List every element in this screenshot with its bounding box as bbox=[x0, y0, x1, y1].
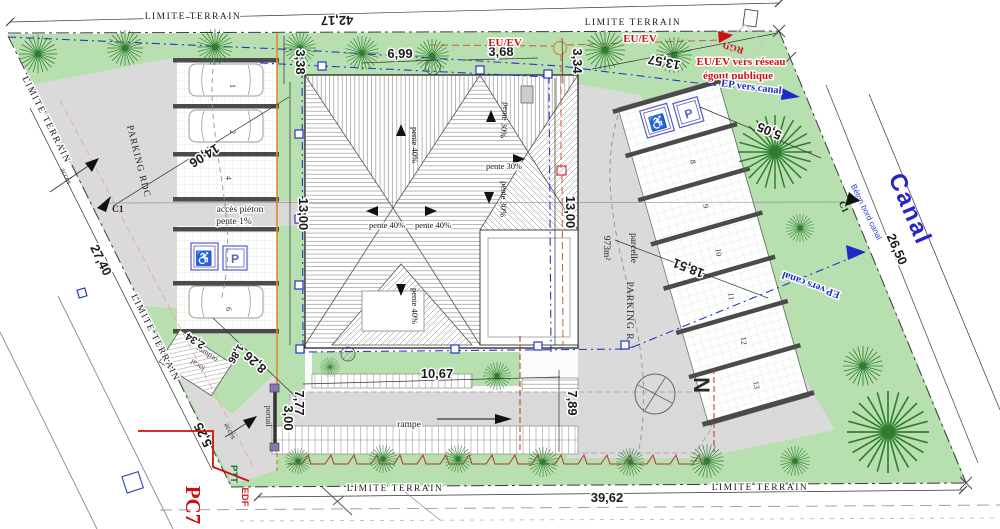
tree-icon bbox=[415, 39, 449, 73]
dim-3-00: 3,00 bbox=[281, 405, 296, 430]
limite-top: LIMITE TERRAIN bbox=[145, 12, 242, 22]
dim-7-89: 7,89 bbox=[565, 390, 580, 415]
dim-6-99: 6,99 bbox=[387, 46, 412, 61]
dim-10-67: 10,67 bbox=[421, 366, 454, 381]
parking-r1-label: PARKING R-1 bbox=[624, 282, 634, 351]
tree-icon bbox=[847, 391, 929, 473]
euev-label: EU/EV bbox=[623, 33, 657, 45]
parking-p-icon: P bbox=[231, 252, 239, 266]
tree-icon bbox=[345, 36, 379, 70]
pc7-label: PC7 bbox=[181, 486, 205, 525]
dim-3-34: 3,34 bbox=[570, 48, 585, 74]
dim-bottom: 39,62 bbox=[591, 490, 624, 505]
wheelchair-icon: ♿ bbox=[195, 250, 212, 267]
chimney bbox=[521, 86, 533, 103]
dim-3-38: 3,38 bbox=[293, 49, 308, 74]
dim-13-00: 13,00 bbox=[563, 196, 578, 229]
space-number: 10 bbox=[714, 248, 724, 257]
ptt-label: PTT bbox=[228, 465, 239, 483]
site-plan-drawing: 1 2 4 6 ♿ P accès piéton pente 1% PARKIN… bbox=[0, 0, 1000, 529]
tree-icon bbox=[285, 448, 311, 474]
tree-icon bbox=[197, 29, 233, 65]
pente40-label: pente 40% bbox=[410, 288, 420, 324]
tree-icon bbox=[19, 35, 57, 73]
parcelle-area-label: 973m² bbox=[601, 236, 611, 261]
courtyard bbox=[480, 230, 578, 345]
manhole-hatched-icon bbox=[341, 347, 355, 361]
portail-label: portail bbox=[264, 406, 273, 428]
site-plan-page: 1 2 4 6 ♿ P accès piéton pente 1% PARKIN… bbox=[0, 0, 1000, 529]
tree-icon bbox=[786, 214, 814, 242]
limite-bottom-right: LIMITE TERRAIN bbox=[712, 483, 809, 493]
edf-label: EDF bbox=[239, 488, 250, 507]
pente30-label: pente 30% bbox=[486, 161, 522, 171]
tree-icon bbox=[690, 444, 724, 478]
building: pente 40% pente 40% pente 40% pente 40% … bbox=[305, 75, 578, 348]
space-number: 4 bbox=[224, 176, 233, 180]
tree-icon bbox=[616, 448, 644, 476]
tree-icon bbox=[843, 346, 883, 386]
tree-icon bbox=[483, 362, 511, 390]
car-icon bbox=[189, 286, 263, 318]
acces-pieton-label: accès piéton bbox=[217, 205, 264, 215]
tree-icon bbox=[528, 447, 558, 477]
tree-icon bbox=[320, 357, 340, 377]
pente40-label: pente 40% bbox=[369, 220, 405, 230]
car-icon bbox=[189, 110, 263, 142]
c1-label: C1 bbox=[112, 205, 124, 215]
pente1-label: pente 1% bbox=[216, 217, 252, 227]
limite-top-right: LIMITE TERRAIN bbox=[585, 18, 682, 28]
tree-icon bbox=[369, 445, 397, 473]
space-number: 11 bbox=[726, 292, 736, 301]
tree-icon bbox=[444, 445, 472, 473]
tree-icon bbox=[780, 446, 810, 476]
dim-top: 42,17 bbox=[321, 13, 354, 29]
euev-label: EU/EV bbox=[488, 37, 522, 49]
rampe-label: rampe bbox=[397, 420, 421, 430]
pente40-label: pente 40% bbox=[410, 127, 420, 163]
limite-bottom-left: LIMITE TERRAIN bbox=[347, 484, 444, 494]
dim-13-00: 13,00 bbox=[296, 198, 311, 231]
space-number: 12 bbox=[739, 336, 749, 345]
euev-reseau-line1: EU/EV vers réseau bbox=[696, 56, 785, 68]
pente40-label: pente 40% bbox=[415, 220, 451, 230]
space-number: 1 bbox=[228, 84, 237, 88]
space-number: 13 bbox=[752, 380, 762, 389]
space-number: 6 bbox=[224, 307, 233, 311]
pente30-label: pente 30% bbox=[498, 181, 509, 217]
north-label: N bbox=[689, 377, 714, 393]
tree-icon bbox=[107, 30, 143, 66]
car-icon bbox=[189, 64, 263, 96]
